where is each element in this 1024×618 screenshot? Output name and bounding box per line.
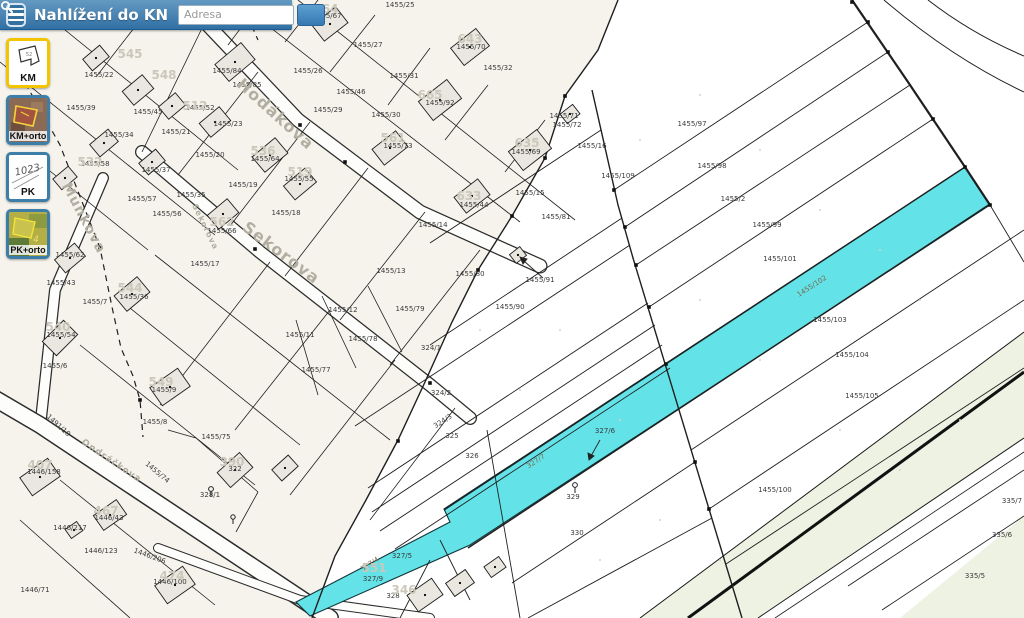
parcel-number-label: 1455/105 <box>845 392 879 400</box>
parcel-number-label: 1455/20 <box>195 151 224 159</box>
parcel-number-label: 1455/78 <box>348 335 377 343</box>
layer-button-pk[interactable]: 1023 PK <box>6 152 50 202</box>
parcel-number-label: 1455/101 <box>763 255 797 263</box>
parcel-number-label: 1455/27 <box>353 41 382 49</box>
parcel-number-label: 335/6 <box>992 531 1013 539</box>
parcel-number-label: 1455/22 <box>84 71 113 79</box>
parcel-number-label: 1455/99 <box>752 221 781 229</box>
parcel-number-label: 1455/15 <box>515 189 544 197</box>
house-number-label: 467 <box>93 504 118 518</box>
house-number-label: 643 <box>457 32 482 46</box>
house-number-label: 633 <box>456 189 481 203</box>
parcel-number-label: 1455/6 <box>43 362 68 370</box>
parcel-number-label: 1455/2 <box>721 195 746 203</box>
parcel-number-label: 1455/17 <box>190 260 219 268</box>
layer-switcher: 52 KM KM+orto 102 <box>6 38 50 259</box>
app-window: 1455/881455/251455/671455/271455/701455/… <box>0 0 1024 618</box>
parcel-number-label: 327/6 <box>595 427 616 435</box>
house-number-label: 390 <box>219 455 244 469</box>
house-number-label: 474 <box>159 569 184 583</box>
search-icon <box>0 0 14 14</box>
parcel-number-label: 1446/71 <box>20 586 49 594</box>
parcel-number-label: 326 <box>465 452 479 460</box>
parcel-number-label: 1455/14 <box>418 221 448 229</box>
parcel-number-label: 327/5 <box>392 552 412 560</box>
house-number-label: 512 <box>182 99 207 113</box>
parcel-number-label: 1446/123 <box>84 547 118 555</box>
parcel-number-label: 1455/26 <box>293 67 323 75</box>
urban-area <box>0 0 618 618</box>
house-number-label: 549 <box>148 375 173 389</box>
house-number-label: 536 <box>250 144 275 158</box>
house-number-label: 346 <box>391 583 416 597</box>
parcel-number-label: 1455/81 <box>541 213 570 221</box>
parcel-number-label: 1455/90 <box>495 303 524 311</box>
app-title: Nahlížení do KN <box>34 6 168 24</box>
svg-text:4: 4 <box>33 235 39 245</box>
parcel-number-label: 1455/103 <box>813 316 847 324</box>
parcel-number-label: 1455/71 <box>549 112 578 120</box>
house-number-label: 548 <box>151 68 176 82</box>
house-number-label: 544 <box>117 281 142 295</box>
parcel-number-label: 1455/19 <box>228 181 257 189</box>
parcel-number-label: 1455/35 <box>176 191 205 199</box>
parcel-number-label: 1455/109 <box>601 172 635 180</box>
parcel-number-label: 1455/62 <box>55 251 84 259</box>
parcel-number-label: 335/5 <box>965 572 985 580</box>
parcel-number-label: 1455/72 <box>552 121 581 129</box>
house-number-label: 545 <box>117 47 142 61</box>
house-number-label: 561 <box>380 131 405 145</box>
parcel-number-label: 1455/39 <box>66 104 95 112</box>
app-header: Nahlížení do KN <box>0 0 292 30</box>
parcel-number-label: 324/3 <box>432 412 453 430</box>
parcel-number-label: 1455/98 <box>697 162 726 170</box>
house-number-label: 540 <box>45 320 70 334</box>
parcel-number-label: 1455/16 <box>577 142 607 150</box>
svg-text:52: 52 <box>26 52 32 58</box>
parcel-number-label: 1455/32 <box>483 64 512 72</box>
parcel-number-label: 1455/45 <box>133 108 162 116</box>
parcel-number-label: 1455/84 <box>212 67 242 75</box>
parcel-number-label: 1455/7 <box>83 298 108 306</box>
parcel-number-label: 330 <box>570 529 583 537</box>
parcel-number-label: 1455/104 <box>835 351 869 359</box>
parcel-number-label: 1455/100 <box>758 486 792 494</box>
layer-button-pk-orto[interactable]: 4 PK+orto <box>6 209 50 259</box>
house-number-label: 532 <box>77 155 102 169</box>
parcel-number-label: 1455/11 <box>285 331 314 339</box>
parcel-number-label: 328/1 <box>200 491 220 499</box>
parcel-number-label: 324/2 <box>431 389 451 397</box>
parcel-number-label: 1455/79 <box>395 305 424 313</box>
parcel-number-label: 1455/56 <box>152 210 182 218</box>
search-button[interactable] <box>297 4 325 26</box>
parcel-number-label: 1455/97 <box>677 120 706 128</box>
address-search <box>178 4 325 26</box>
parcel-number-label: 1455/57 <box>127 195 156 203</box>
parcel-number-label: 324/1 <box>421 344 441 352</box>
parcel-number-label: 1455/25 <box>385 1 414 9</box>
parcel-number-label: 1455/46 <box>336 88 366 96</box>
cadastral-map[interactable]: 1455/881455/251455/671455/271455/701455/… <box>0 0 1024 618</box>
parcel-number-label: 1455/8 <box>143 418 168 426</box>
parcel-number-label: 1455/31 <box>389 72 418 80</box>
house-number-label: 562 <box>209 215 234 229</box>
parcel-number-label: 1455/18 <box>271 209 300 217</box>
parcel-number-label: 1455/21 <box>161 128 190 136</box>
parcel-number-label: 1455/75 <box>201 433 230 441</box>
house-number-label: 665 <box>417 88 442 102</box>
parcel-number-label: 1455/37 <box>141 166 170 174</box>
house-number-label: 407 <box>27 458 52 472</box>
parcel-number-label: 1455/34 <box>104 131 134 139</box>
house-number-label: 519 <box>287 165 312 179</box>
parcel-number-label: 329 <box>566 493 579 501</box>
parcel-number-label: 335/7 <box>1002 497 1022 505</box>
layer-button-km[interactable]: 52 KM <box>6 38 50 88</box>
parcel-number-label: 1455/13 <box>376 267 405 275</box>
house-number-label: 635 <box>514 136 539 150</box>
parcel-number-label: 325 <box>445 432 458 440</box>
parcel-number-label: 1455/23 <box>213 120 242 128</box>
layer-button-km-orto[interactable]: KM+orto <box>6 95 50 145</box>
parcel-number-label: 1455/80 <box>455 270 484 278</box>
parcel-number-label: 1455/29 <box>313 106 342 114</box>
parcel-number-label: 1455/12 <box>328 306 357 314</box>
parcel-number-label: 1446/217 <box>53 524 87 532</box>
parcel-number-label: 327/9 <box>363 575 383 583</box>
parcel-number-label: 1455/30 <box>371 111 400 119</box>
parcel-number-label: 1455/43 <box>46 279 75 287</box>
parcel-number-label: 1455/91 <box>525 276 554 284</box>
parcel-number-label: 1455/77 <box>301 366 330 374</box>
address-input[interactable] <box>178 5 294 25</box>
house-number-label: 551 <box>361 561 386 575</box>
